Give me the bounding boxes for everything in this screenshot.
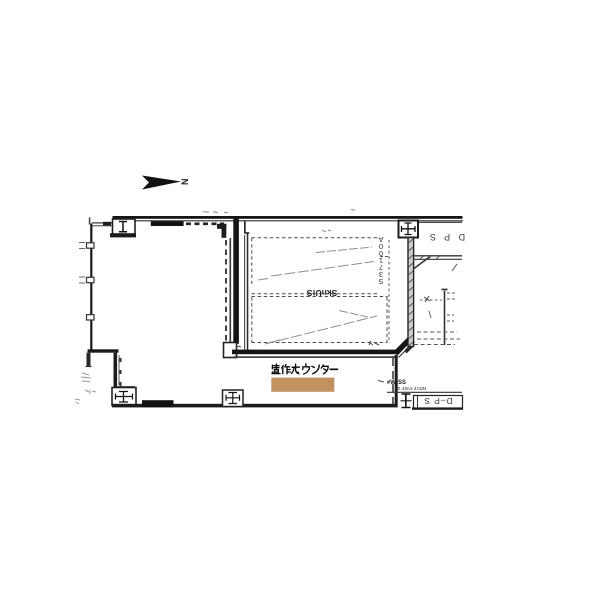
svg-text:D P S: D P S xyxy=(427,232,465,242)
svg-text:S: S xyxy=(378,277,383,286)
svg-text:N: N xyxy=(180,179,190,186)
svg-text:D–P S: D–P S xyxy=(423,396,452,406)
svg-text:SknU≀S: SknU≀S xyxy=(306,288,337,298)
svg-text:ΤΣ 45/νε 4ΞΩΝ: ΤΣ 45/νε 4ΞΩΝ xyxy=(395,386,426,391)
